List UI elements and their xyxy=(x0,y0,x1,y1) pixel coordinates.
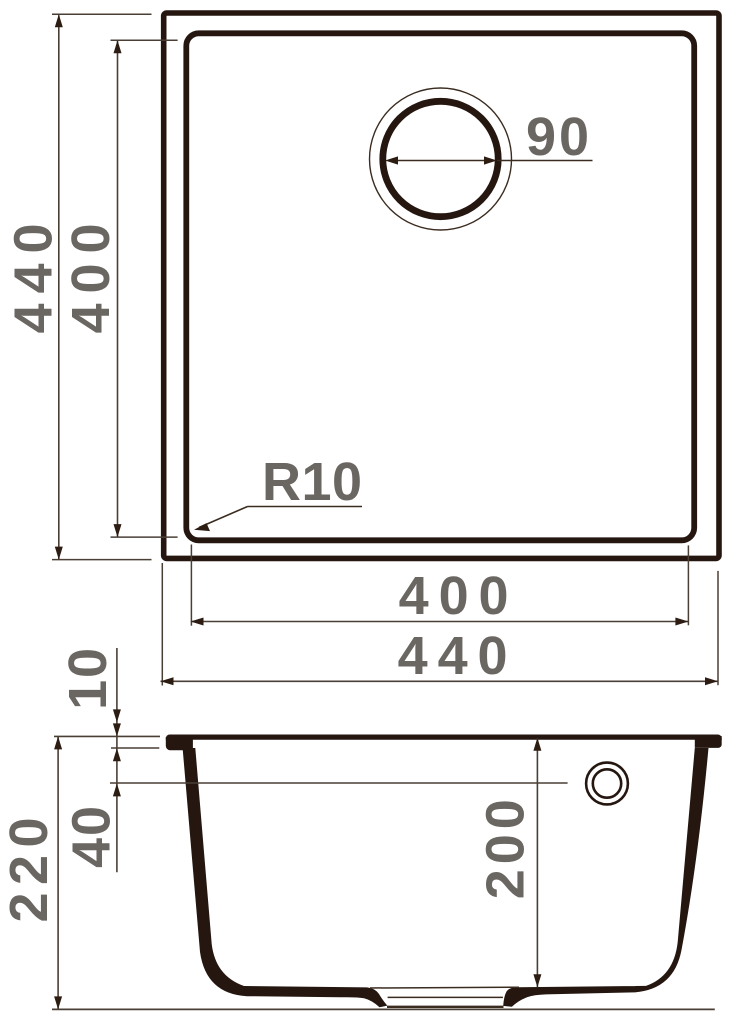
svg-text:90: 90 xyxy=(526,107,589,167)
svg-text:R10: R10 xyxy=(262,452,362,512)
svg-text:200: 200 xyxy=(476,799,536,899)
svg-text:220: 220 xyxy=(0,818,59,923)
svg-text:40: 40 xyxy=(61,806,121,868)
svg-text:400: 400 xyxy=(61,224,121,334)
svg-text:440: 440 xyxy=(398,626,508,686)
svg-text:440: 440 xyxy=(4,224,64,334)
svg-text:400: 400 xyxy=(399,566,509,626)
svg-text:10: 10 xyxy=(58,648,118,710)
